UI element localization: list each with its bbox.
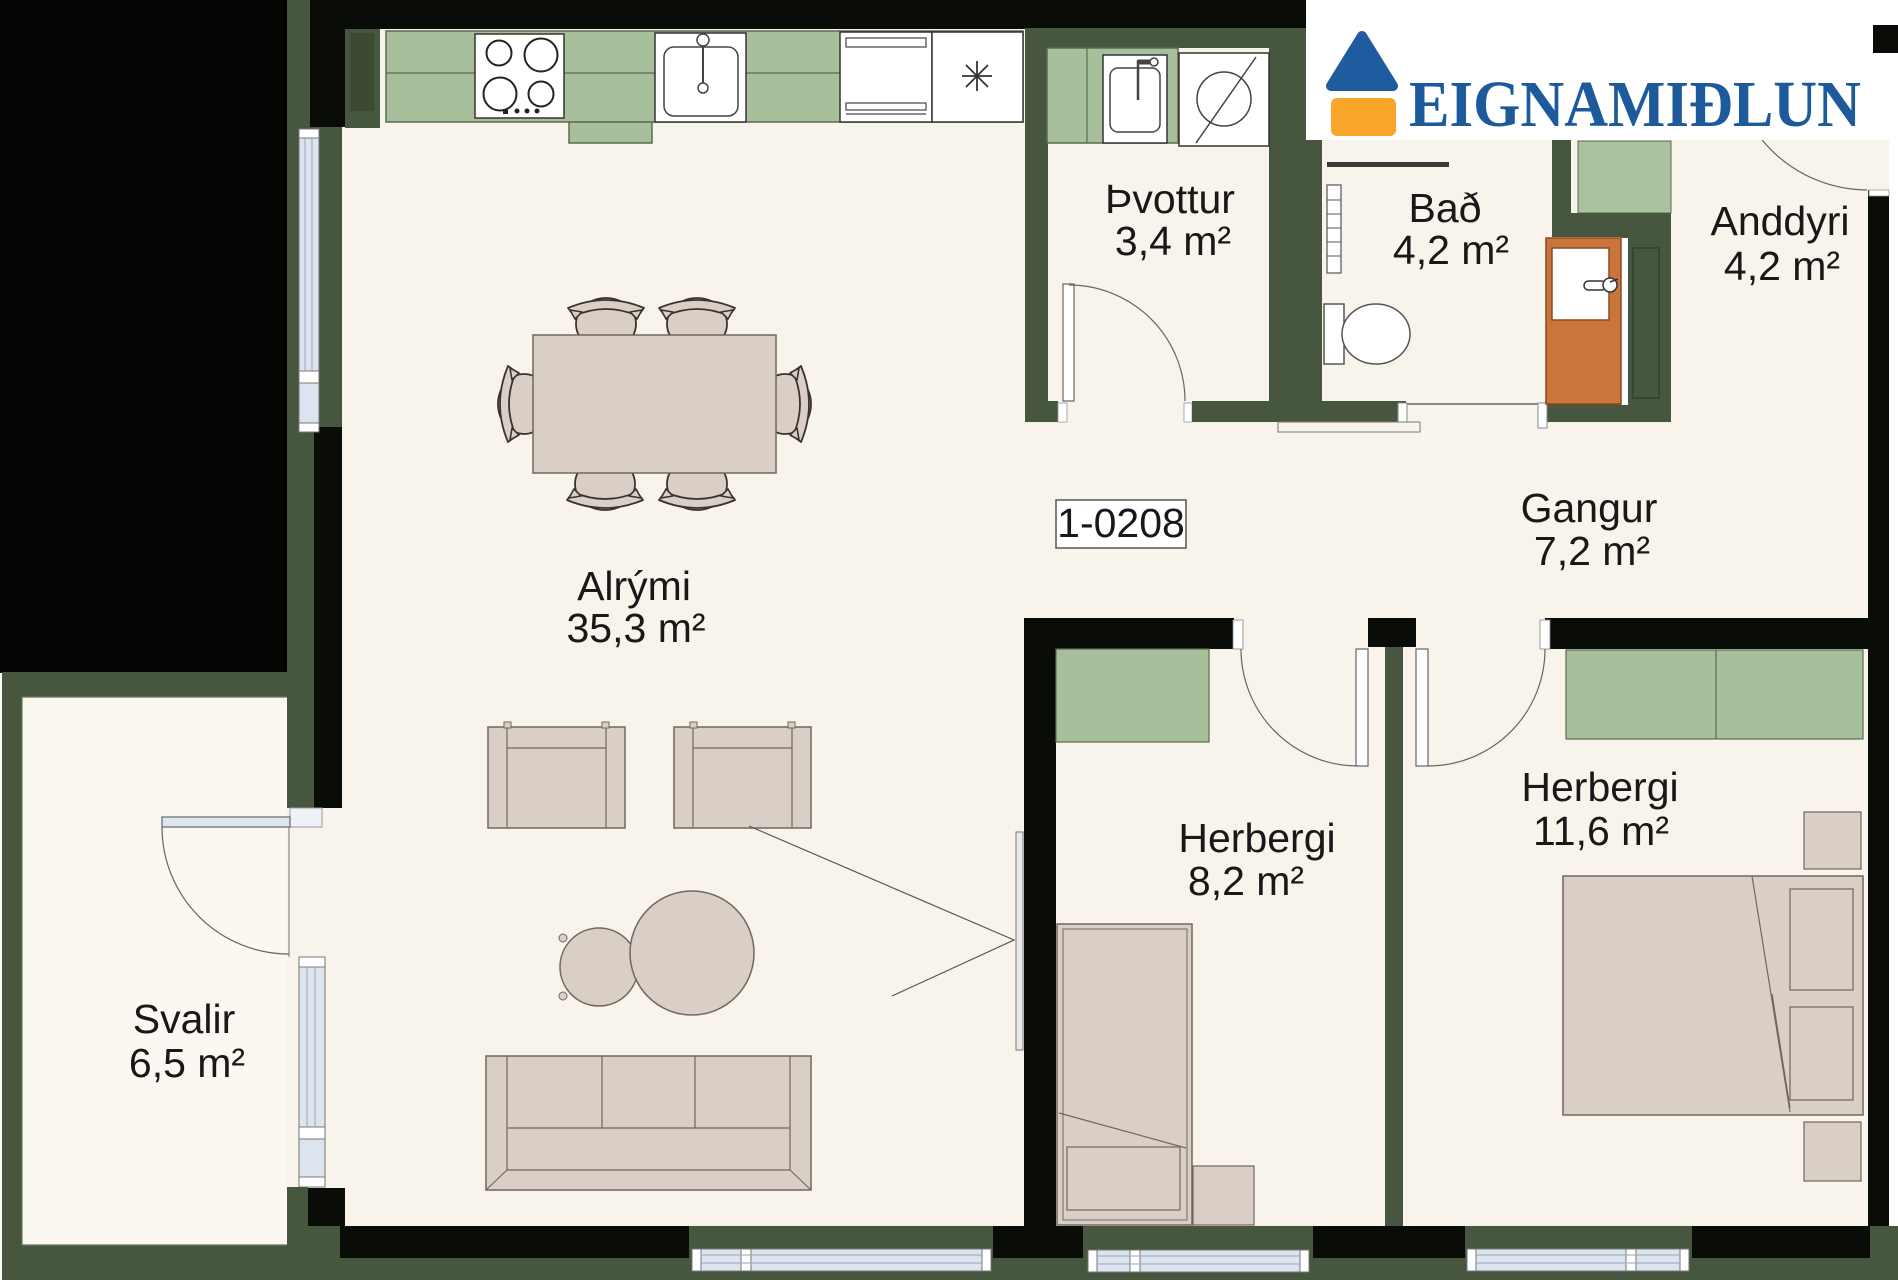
svg-text:Herbergi: Herbergi — [1521, 764, 1678, 810]
svg-text:4,2 m²: 4,2 m² — [1724, 243, 1840, 289]
svg-text:11,6 m²: 11,6 m² — [1533, 808, 1669, 854]
svg-text:8,2 m²: 8,2 m² — [1188, 858, 1304, 904]
svg-text:1-0208: 1-0208 — [1057, 500, 1185, 546]
svg-text:4,2 m²: 4,2 m² — [1393, 227, 1509, 273]
svg-text:EIGNAMIÐLUN: EIGNAMIÐLUN — [1409, 68, 1861, 141]
svg-text:Gangur: Gangur — [1521, 485, 1658, 531]
svg-text:6,5 m²: 6,5 m² — [129, 1040, 245, 1086]
svg-text:7,2 m²: 7,2 m² — [1534, 528, 1650, 574]
svg-text:Þvottur: Þvottur — [1105, 176, 1235, 222]
svg-text:Anddyri: Anddyri — [1710, 198, 1849, 244]
svg-text:Alrými: Alrými — [577, 563, 691, 609]
svg-text:Svalir: Svalir — [133, 996, 236, 1042]
svg-text:3,4 m²: 3,4 m² — [1115, 218, 1231, 264]
svg-text:Herbergi: Herbergi — [1178, 815, 1335, 861]
svg-text:35,3 m²: 35,3 m² — [567, 605, 706, 651]
svg-text:Bað: Bað — [1409, 185, 1482, 231]
